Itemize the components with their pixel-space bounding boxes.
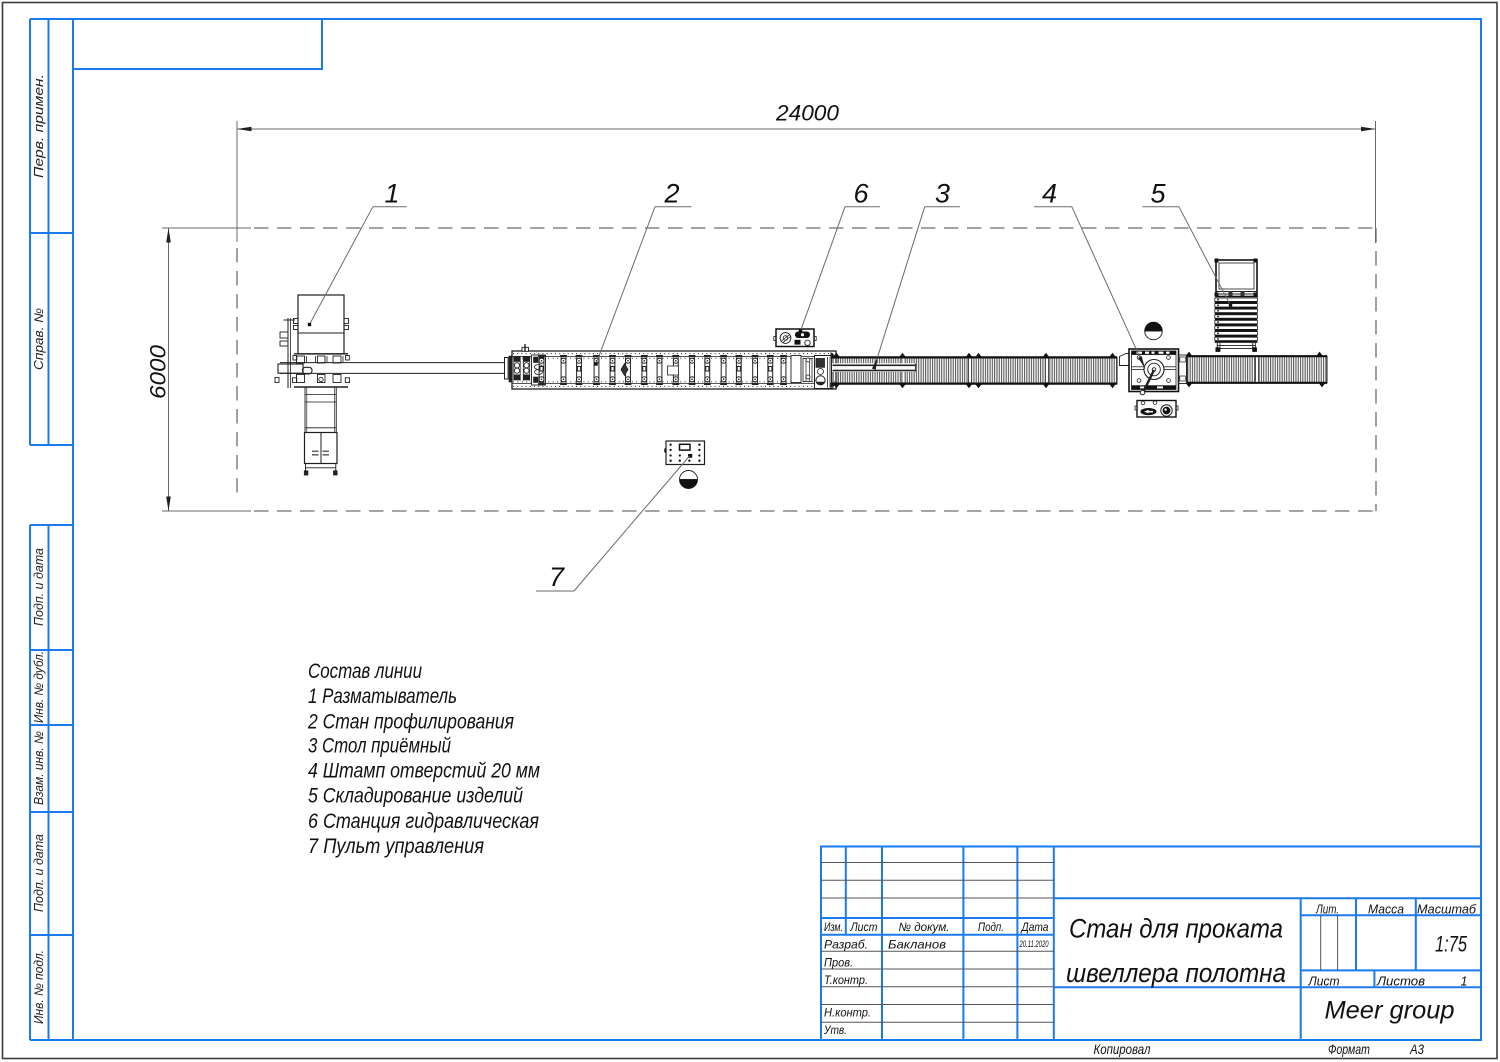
svg-text:5 Складирование изделий: 5 Складирование изделий	[308, 785, 523, 808]
svg-text:7: 7	[549, 562, 565, 592]
svg-text:7 Пульт управления: 7 Пульт управления	[308, 835, 484, 858]
svg-text:Бакланов: Бакланов	[888, 938, 946, 952]
svg-text:6 Станция гидравлическая: 6 Станция гидравлическая	[308, 810, 539, 833]
svg-text:1:75: 1:75	[1435, 932, 1468, 957]
svg-text:Масштаб: Масштаб	[1417, 903, 1477, 917]
svg-text:Пров.: Пров.	[824, 955, 853, 969]
svg-text:Лит.: Лит.	[1315, 903, 1339, 917]
svg-text:Копировал: Копировал	[1094, 1041, 1151, 1057]
svg-text:Инв. № дубл.: Инв. № дубл.	[32, 651, 46, 723]
svg-text:Стан для проката: Стан для проката	[1069, 914, 1283, 944]
svg-text:1: 1	[384, 179, 399, 209]
svg-text:Утв.: Утв.	[823, 1023, 847, 1037]
svg-text:швеллера полотна: швеллера полотна	[1066, 958, 1286, 988]
svg-text:4: 4	[1042, 179, 1057, 209]
svg-text:24000: 24000	[775, 101, 839, 126]
svg-text:2 Стан профилирования: 2 Стан профилирования	[307, 711, 514, 734]
svg-text:3: 3	[935, 179, 950, 209]
svg-text:Инв. № подл.: Инв. № подл.	[32, 950, 46, 1024]
svg-text:Формат: Формат	[1328, 1041, 1370, 1057]
svg-text:Справ. №: Справ. №	[32, 308, 46, 370]
svg-text:Взам. инв. №: Взам. инв. №	[32, 731, 46, 805]
svg-text:Состав линии: Состав линии	[308, 660, 422, 683]
svg-text:Листов: Листов	[1376, 975, 1426, 989]
svg-text:А3: А3	[1409, 1041, 1424, 1057]
svg-text:№ докум.: № докум.	[899, 920, 950, 934]
svg-text:Подп.: Подп.	[978, 920, 1004, 934]
svg-text:Meer group: Meer group	[1325, 997, 1455, 1025]
svg-text:5: 5	[1150, 179, 1166, 209]
svg-text:6: 6	[853, 179, 869, 209]
svg-text:Изм.: Изм.	[824, 920, 843, 934]
svg-text:Дата: Дата	[1020, 920, 1049, 934]
svg-text:Масса: Масса	[1368, 903, 1404, 917]
svg-text:Лист: Лист	[1308, 975, 1340, 989]
svg-text:Перв. примен.: Перв. примен.	[32, 74, 46, 178]
svg-text:3 Стол приёмный: 3 Стол приёмный	[308, 735, 451, 758]
svg-text:1: 1	[1461, 975, 1468, 989]
svg-text:20.11.2020: 20.11.2020	[1019, 939, 1049, 949]
svg-text:Лист: Лист	[850, 920, 878, 934]
svg-text:4 Штамп отверстий 20 мм: 4 Штамп отверстий 20 мм	[308, 760, 540, 783]
svg-text:1 Разматыватель: 1 Разматыватель	[308, 685, 457, 708]
svg-text:2: 2	[663, 179, 679, 209]
svg-text:Т.контр.: Т.контр.	[824, 973, 868, 987]
svg-text:Разраб.: Разраб.	[824, 938, 868, 952]
svg-text:Н.контр.: Н.контр.	[824, 1005, 871, 1019]
svg-text:Подп. и дата: Подп. и дата	[32, 548, 46, 626]
svg-text:6000: 6000	[146, 344, 171, 399]
svg-text:Подп. и дата: Подп. и дата	[32, 834, 46, 912]
